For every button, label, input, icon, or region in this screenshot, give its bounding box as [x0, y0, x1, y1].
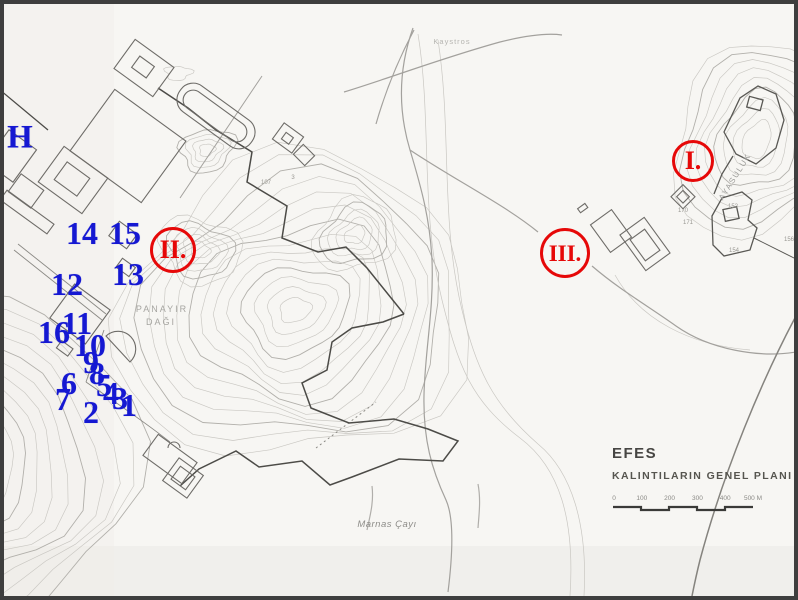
- spot-height-labels: 3107170171152154156: [261, 175, 794, 254]
- spot-height-label: 156: [784, 237, 794, 243]
- roads-and-rivers: [14, 28, 794, 596]
- spot-height-label: 170: [678, 208, 689, 214]
- map-paper: 3107170171152154156 Kaystros PANAYIR DAĞ…: [4, 4, 794, 596]
- scale-label: 400: [720, 495, 731, 502]
- lowland-contours: [418, 34, 750, 596]
- contour-lines: [4, 46, 794, 596]
- scale-bar: [613, 507, 753, 510]
- panayir-label-1: PANAYIR: [136, 304, 188, 314]
- map-subtitle: KALINTILARIN GENEL PLANI: [612, 470, 792, 482]
- spot-height-label: 107: [261, 180, 272, 186]
- ayasuluk-citadel: [712, 86, 794, 260]
- marnas-stream-2: [478, 484, 480, 528]
- road-east: [592, 266, 794, 354]
- spot-height-label: 152: [728, 204, 739, 210]
- spot-height-label: 154: [729, 248, 740, 254]
- scale-label: 500 M: [744, 495, 762, 502]
- scale-label: 200: [664, 495, 675, 502]
- road-to-isabey: [410, 150, 538, 232]
- scale-labels: 0100200300400500 M: [612, 495, 762, 502]
- spot-height-label: 171: [683, 220, 694, 226]
- scale-label: 300: [692, 495, 703, 502]
- scale-label: 100: [636, 495, 647, 502]
- kaystros-label: Kaystros: [433, 37, 470, 46]
- legend: EFES KALINTILARIN GENEL PLANI 0100200300…: [612, 445, 792, 510]
- spot-height-label: 3: [291, 175, 295, 181]
- panayir-label-2: DAĞI: [146, 317, 176, 327]
- modern-road: [180, 76, 262, 198]
- map-frame: 3107170171152154156 Kaystros PANAYIR DAĞ…: [0, 0, 798, 600]
- map-title: EFES: [612, 445, 657, 462]
- scale-label: 0: [612, 495, 616, 502]
- marnas-label: Marnas Çayı: [357, 519, 416, 530]
- topographic-map: 3107170171152154156 Kaystros PANAYIR DAĞ…: [4, 4, 794, 596]
